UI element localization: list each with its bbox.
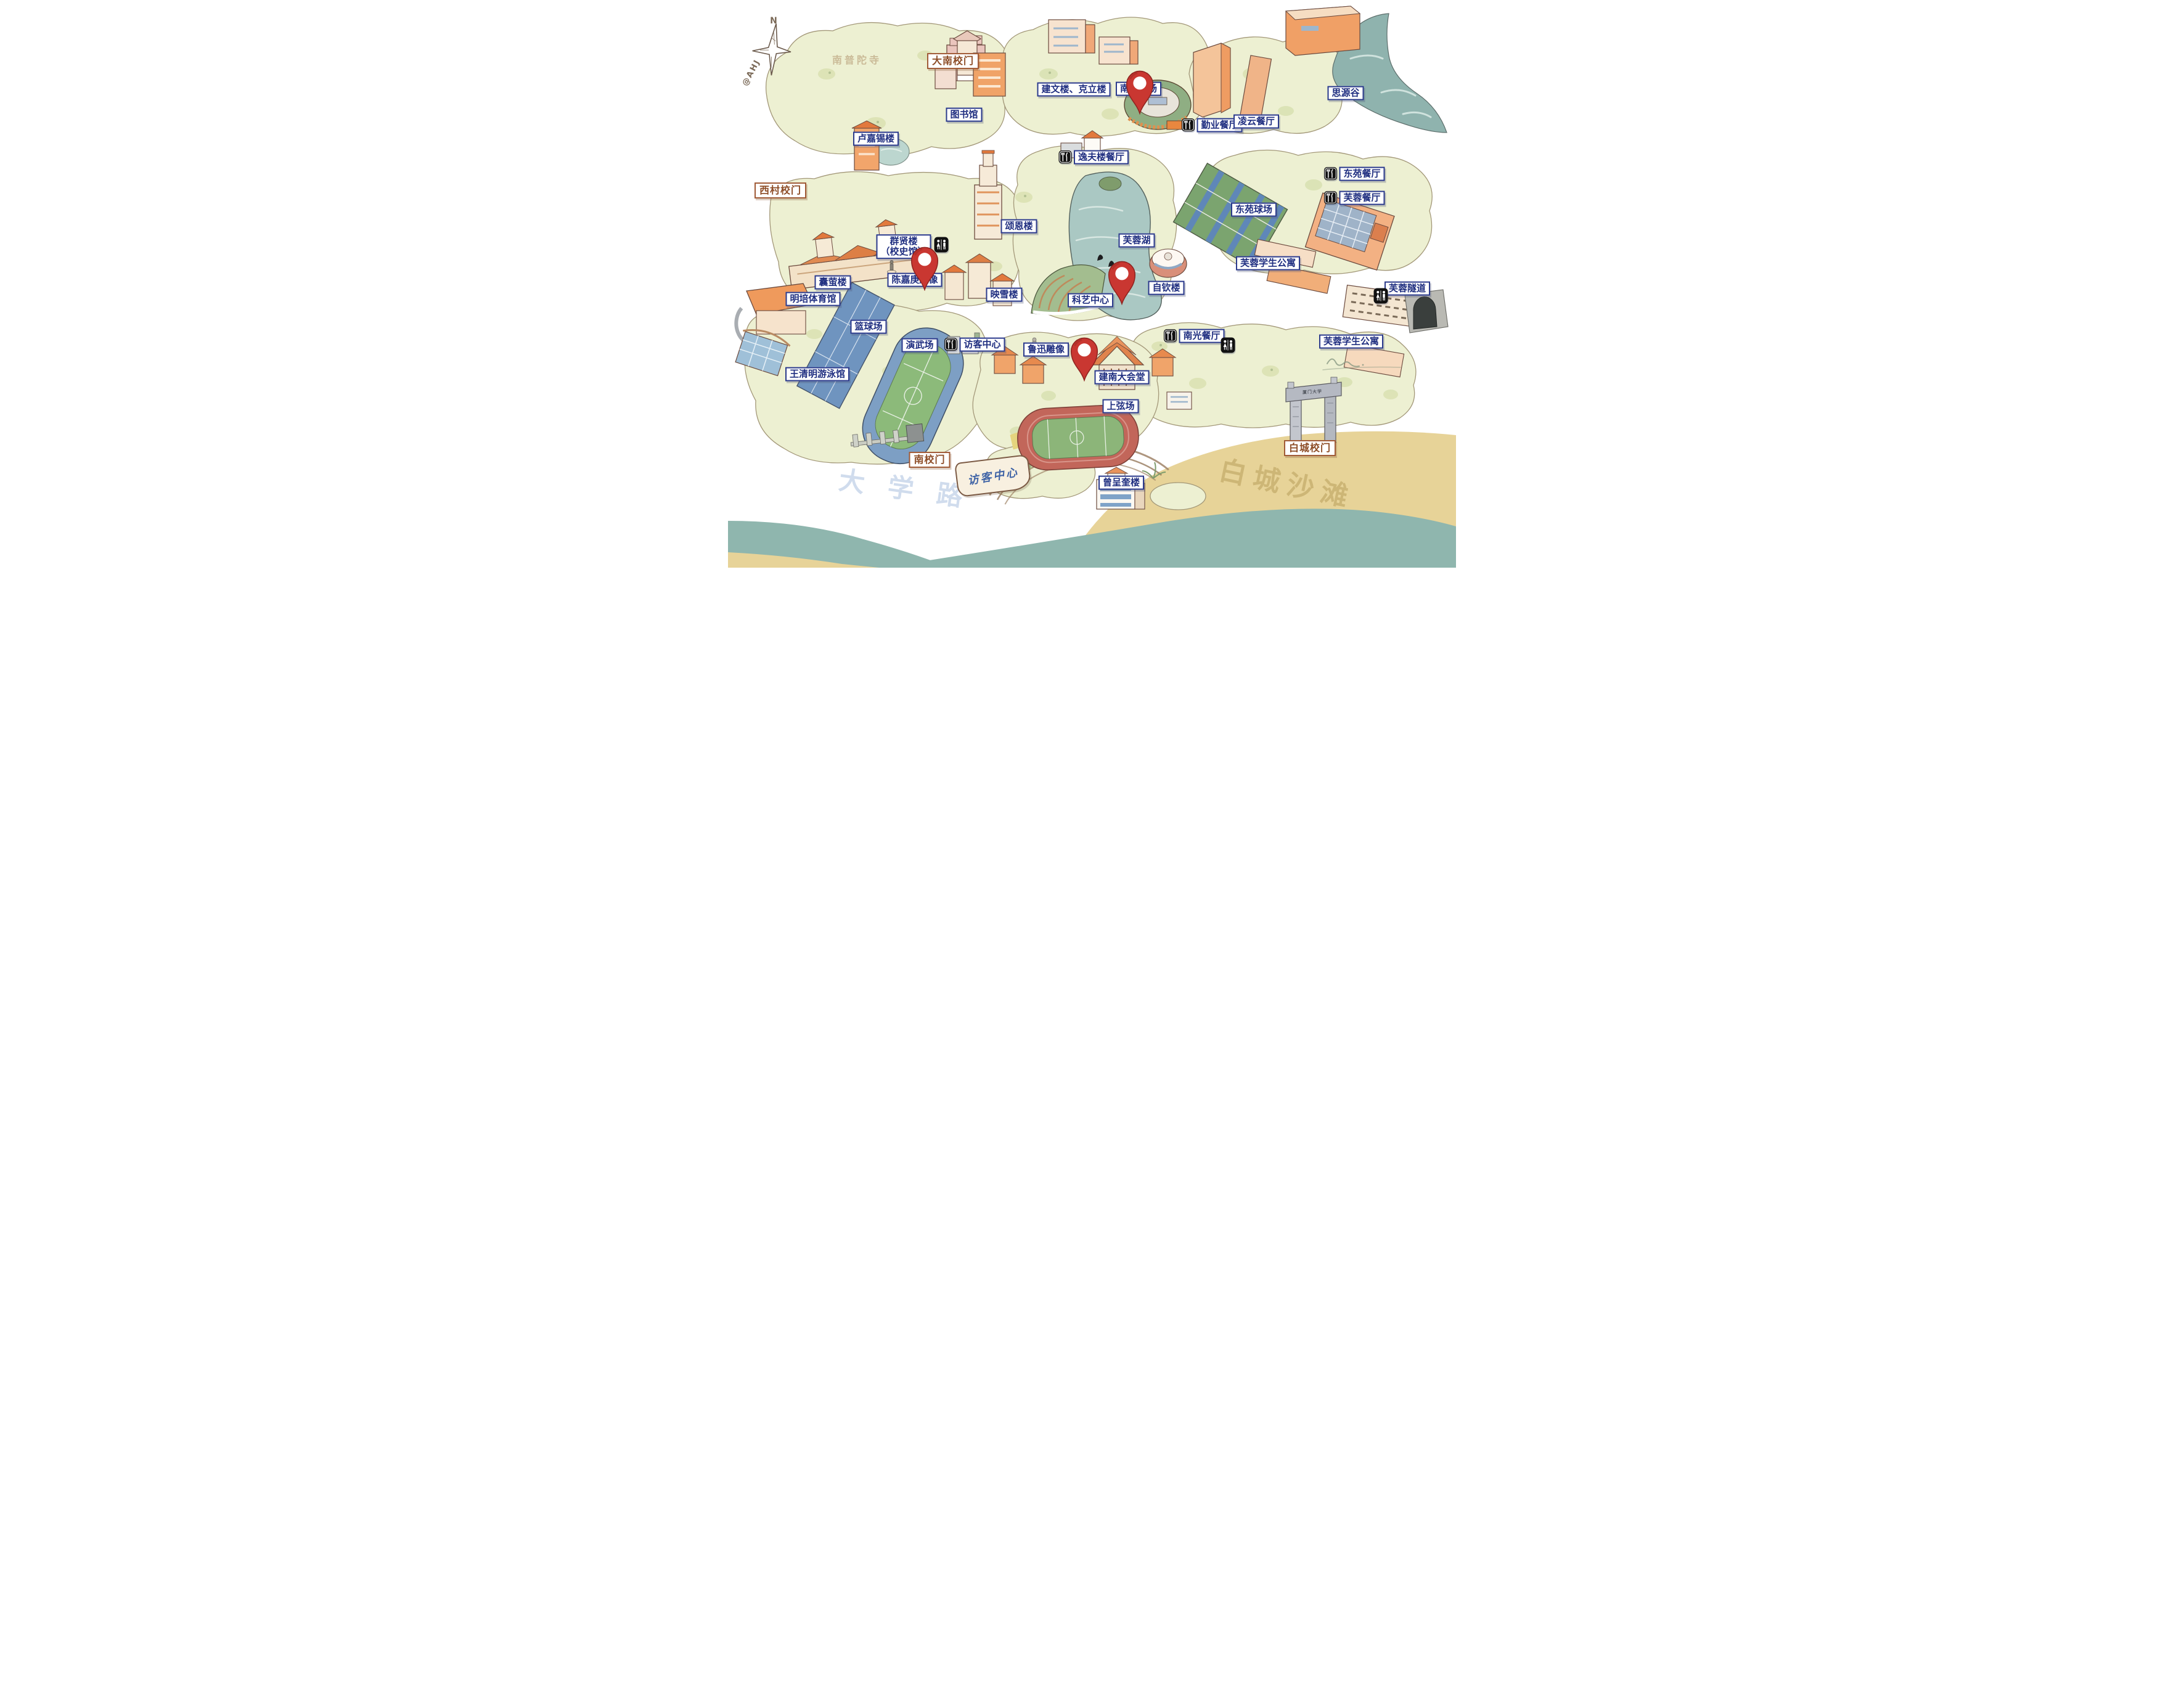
map-label-yingxue-building: 映雪楼 bbox=[986, 288, 1022, 302]
visitor-center-banner-text: 访客中心 bbox=[966, 464, 1020, 488]
label-layer: 建文楼、克立楼南强广场勤业餐厅凌云餐厅思源谷图书馆卢嘉锡楼逸夫楼餐厅东苑餐厅芙蓉… bbox=[728, 0, 1456, 568]
map-label-siyuan-valley: 思源谷 bbox=[1327, 86, 1364, 100]
location-pin-pin-chenjiageng bbox=[907, 237, 943, 292]
map-label-text: 南光餐厅 bbox=[1179, 329, 1224, 343]
map-label-luxun-statue: 鲁迅雕像 bbox=[1023, 343, 1069, 357]
map-label-nangying-building: 囊萤楼 bbox=[814, 276, 851, 290]
map-label-mingpei-gym: 明培体育馆 bbox=[785, 292, 840, 306]
map-label-text: 访客中心 bbox=[959, 338, 1005, 352]
map-label-text: 明培体育馆 bbox=[785, 292, 840, 306]
map-label-text: 囊萤楼 bbox=[814, 276, 851, 290]
map-label-furong-canteen: 芙蓉餐厅 bbox=[1323, 191, 1384, 205]
map-label-text: 王清明游泳馆 bbox=[785, 367, 849, 382]
dining-icon bbox=[1058, 150, 1072, 164]
map-label-text: 演武场 bbox=[901, 338, 938, 353]
map-label-ziqin-building: 自钦楼 bbox=[1148, 281, 1184, 295]
map-label-basketball-court: 篮球场 bbox=[850, 320, 886, 334]
dining-icon bbox=[1181, 118, 1195, 132]
map-label-text: 南普陀寺 bbox=[832, 55, 881, 66]
map-label-text: 图书馆 bbox=[946, 108, 982, 122]
map-label-nanputuo-temple: 南普陀寺 bbox=[832, 55, 881, 66]
map-label-text: 颂恩楼 bbox=[1000, 219, 1037, 234]
map-label-text: 芙蓉学生公寓 bbox=[1236, 256, 1300, 271]
map-label-jiannan-hall: 建南大会堂 bbox=[1094, 370, 1149, 385]
map-label-text: 南校门 bbox=[909, 452, 950, 468]
compass-north-letter: N bbox=[770, 16, 777, 26]
map-label-wangqingming-pool: 王清明游泳馆 bbox=[785, 367, 849, 382]
map-label-text: 曾呈奎楼 bbox=[1098, 476, 1144, 490]
map-label-library: 图书馆 bbox=[946, 108, 982, 122]
map-label-text: 上弦场 bbox=[1102, 399, 1139, 414]
dining-icon bbox=[1323, 167, 1337, 181]
map-label-danan-gate: 大南校门 bbox=[927, 53, 979, 69]
map-label-furong-tunnel: 芙蓉隧道 bbox=[1384, 282, 1430, 296]
map-label-nan-gate: 南校门 bbox=[909, 452, 950, 468]
map-label-text: 自钦楼 bbox=[1148, 281, 1184, 295]
map-label-text: 大南校门 bbox=[927, 53, 979, 69]
map-label-text: 思源谷 bbox=[1327, 86, 1364, 100]
map-label-text: 芙蓉学生公寓 bbox=[1319, 335, 1383, 349]
map-label-jianwen-keli-buildings: 建文楼、克立楼 bbox=[1037, 83, 1110, 97]
map-label-text: 逸夫楼餐厅 bbox=[1074, 150, 1129, 165]
map-label-text: 白城校门 bbox=[1284, 440, 1336, 456]
map-label-yifu-canteen: 逸夫楼餐厅 bbox=[1058, 150, 1129, 165]
map-label-text: 鲁迅雕像 bbox=[1023, 343, 1069, 357]
map-label-text: 芙蓉餐厅 bbox=[1339, 191, 1384, 205]
map-label-nanguang-canteen: 南光餐厅 bbox=[1163, 329, 1224, 343]
map-label-text: 芙蓉隧道 bbox=[1384, 282, 1430, 296]
map-label-dongyuan-courts: 东苑球场 bbox=[1231, 203, 1277, 217]
dining-icon bbox=[944, 338, 957, 351]
map-label-text: 建南大会堂 bbox=[1094, 370, 1149, 385]
location-pin-pin-jiannan bbox=[1066, 328, 1102, 382]
map-label-furong-dorm-2: 芙蓉学生公寓 bbox=[1319, 335, 1383, 349]
map-label-text: 卢嘉锡楼 bbox=[853, 132, 899, 146]
location-pin-pin-nanqiang bbox=[1122, 61, 1158, 115]
map-label-dongyuan-canteen: 东苑餐厅 bbox=[1323, 167, 1384, 181]
map-label-shangxian-field: 上弦场 bbox=[1102, 399, 1139, 414]
map-label-text: 东苑餐厅 bbox=[1339, 167, 1384, 181]
map-label-xicun-gate: 西村校门 bbox=[755, 182, 806, 198]
map-label-text: 芙蓉湖 bbox=[1118, 234, 1155, 248]
map-label-text: 东苑球场 bbox=[1231, 203, 1277, 217]
dining-icon bbox=[1323, 191, 1337, 205]
baicheng-gate-inscription: 厦门大学 bbox=[1303, 388, 1322, 396]
map-label-lujiaxi-building: 卢嘉锡楼 bbox=[853, 132, 899, 146]
map-label-text: 建文楼、克立楼 bbox=[1037, 83, 1110, 97]
map-label-songen-tower: 颂恩楼 bbox=[1000, 219, 1037, 234]
wc-icon-wc-nanguang bbox=[1221, 337, 1235, 353]
map-label-baicheng-beach: 白城沙滩 bbox=[1216, 455, 1357, 514]
map-label-baicheng-gate: 白城校门 bbox=[1284, 440, 1336, 456]
map-label-text: 篮球场 bbox=[850, 320, 886, 334]
dining-icon bbox=[1163, 329, 1177, 343]
map-label-text: 映雪楼 bbox=[986, 288, 1022, 302]
map-label-text: 西村校门 bbox=[755, 182, 806, 198]
campus-map: 建文楼、克立楼南强广场勤业餐厅凌云餐厅思源谷图书馆卢嘉锡楼逸夫楼餐厅东苑餐厅芙蓉… bbox=[728, 0, 1456, 568]
map-label-visitor-center: 访客中心 bbox=[944, 338, 1005, 352]
wc-icon-wc-tunnel bbox=[1373, 288, 1388, 304]
map-label-text: 凌云餐厅 bbox=[1233, 115, 1279, 129]
map-label-lingyun-canteen: 凌云餐厅 bbox=[1233, 115, 1279, 129]
map-label-text: 白城沙滩 bbox=[1216, 455, 1357, 514]
location-pin-pin-keyi bbox=[1104, 251, 1140, 306]
map-label-yanwu-field: 演武场 bbox=[901, 338, 938, 353]
map-label-furong-lake: 芙蓉湖 bbox=[1118, 234, 1155, 248]
map-label-furong-dorm-1: 芙蓉学生公寓 bbox=[1236, 256, 1300, 271]
map-label-zengchengkui-building: 曾呈奎楼 bbox=[1098, 476, 1144, 490]
